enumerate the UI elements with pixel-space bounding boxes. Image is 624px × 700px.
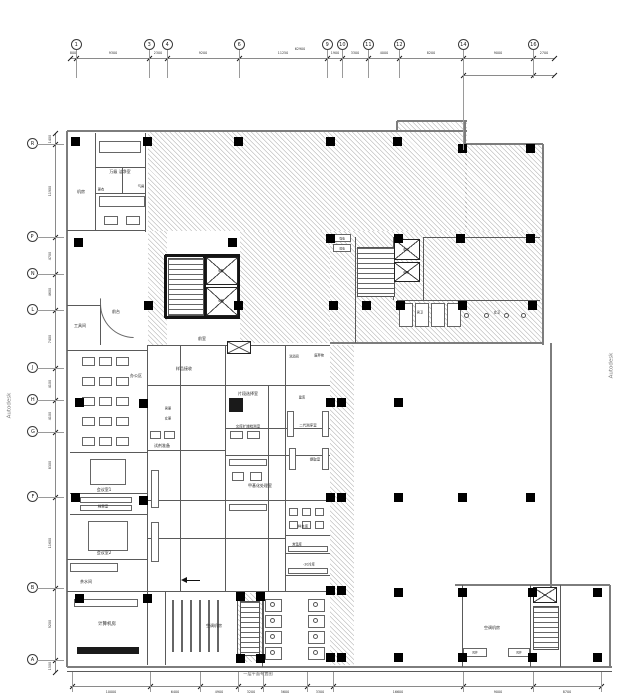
column-marker bbox=[337, 398, 346, 407]
room-label: 女卫 bbox=[494, 310, 500, 315]
wall-segment bbox=[268, 385, 269, 591]
wall-segment bbox=[70, 514, 147, 515]
wall-segment bbox=[180, 345, 181, 591]
room-label: 强电 bbox=[339, 236, 345, 240]
furniture-rect bbox=[287, 411, 294, 437]
room-label: -20冷库 bbox=[303, 562, 315, 567]
dimension-text: 4700 bbox=[48, 251, 52, 259]
column-marker bbox=[528, 301, 537, 310]
wall-segment bbox=[560, 585, 561, 667]
room-label: 计算机房 bbox=[98, 620, 116, 627]
fixture-dot bbox=[504, 313, 509, 318]
grid-line bbox=[533, 50, 534, 78]
dimension-text: 3300 bbox=[316, 690, 324, 694]
column-marker bbox=[326, 586, 335, 595]
outer-wall bbox=[66, 131, 68, 667]
room-label: 风井 bbox=[472, 650, 478, 654]
fixture-dot bbox=[270, 618, 275, 623]
room-label: 男更 bbox=[165, 406, 171, 411]
wall-segment bbox=[100, 305, 101, 345]
column-marker bbox=[326, 137, 335, 146]
wall-segment bbox=[148, 500, 330, 501]
reception-desk-curve bbox=[100, 298, 134, 338]
wall-segment bbox=[355, 237, 356, 343]
room-label: 样本库 bbox=[298, 523, 309, 528]
dimension-text: 11250 bbox=[278, 51, 288, 55]
grid-line bbox=[601, 672, 602, 692]
fixture-dot bbox=[484, 313, 489, 318]
room-label: 试剂准备 bbox=[154, 442, 170, 448]
furniture-rect bbox=[172, 600, 174, 652]
fixture-dot bbox=[313, 618, 318, 623]
equipment-block bbox=[77, 647, 139, 654]
dimension-tick bbox=[53, 670, 59, 676]
fixture-dot bbox=[464, 313, 469, 318]
grid-line bbox=[37, 497, 64, 498]
dimension-text: 9300 bbox=[108, 51, 116, 55]
wall-segment bbox=[67, 230, 145, 231]
furniture-rect bbox=[199, 600, 201, 652]
furniture-rect bbox=[80, 497, 132, 503]
room-label: 电梯 bbox=[403, 247, 409, 252]
furniture-rect bbox=[289, 448, 296, 470]
furniture-rect bbox=[82, 417, 95, 426]
column-marker bbox=[394, 398, 403, 407]
entrance-arrow-icon bbox=[181, 577, 187, 583]
dimension-text: 4000 bbox=[379, 51, 387, 55]
floor-plan-canvas: Autodesk Autodesk 一层平面布置图 机房万级 洁净室气闸更衣工具… bbox=[0, 0, 624, 700]
grid-line bbox=[37, 237, 64, 238]
fixture-dot bbox=[270, 650, 275, 655]
fixture-dot bbox=[313, 634, 318, 639]
furniture-rect bbox=[322, 448, 329, 470]
furniture-rect bbox=[90, 459, 126, 485]
wall-segment bbox=[70, 493, 147, 494]
grid-line bbox=[37, 660, 64, 661]
wall-segment bbox=[67, 350, 147, 351]
dimension-line bbox=[463, 75, 554, 76]
column-marker bbox=[458, 301, 467, 310]
furniture-rect bbox=[99, 397, 112, 406]
furniture-rect bbox=[229, 504, 267, 511]
room-label: 机房 bbox=[77, 188, 85, 194]
room-label: 洗消间 bbox=[289, 354, 299, 359]
fixture-dot bbox=[313, 602, 318, 607]
column-marker bbox=[393, 137, 402, 146]
dimension-text: 4600 bbox=[48, 288, 52, 296]
column-marker bbox=[394, 653, 403, 662]
wall-segment bbox=[70, 452, 147, 453]
furniture-rect bbox=[116, 397, 129, 406]
dimension-text: 9200 bbox=[199, 51, 207, 55]
wall-segment bbox=[423, 237, 424, 300]
furniture-rect bbox=[181, 600, 183, 652]
column-marker bbox=[394, 234, 403, 243]
wall-segment bbox=[148, 450, 225, 451]
grid-line bbox=[76, 50, 77, 78]
entrance-arrow-line bbox=[186, 580, 200, 581]
room-label: 工具间 bbox=[74, 322, 86, 328]
wall-segment bbox=[145, 133, 146, 232]
room-label: 空调机房 bbox=[484, 624, 500, 630]
grid-line bbox=[263, 672, 264, 692]
grid-bubble: 6 bbox=[234, 39, 245, 50]
room-label: 片段选择室 bbox=[238, 390, 258, 396]
grid-line bbox=[37, 588, 64, 589]
grid-line bbox=[37, 432, 64, 433]
furniture-rect bbox=[99, 377, 112, 386]
furniture-rect bbox=[431, 303, 445, 327]
hatch-region bbox=[148, 131, 467, 231]
furniture-rect bbox=[415, 303, 429, 327]
dimension-text: 11900 bbox=[48, 185, 52, 195]
furniture-rect bbox=[104, 216, 118, 225]
furniture-rect bbox=[315, 521, 324, 529]
furniture-rect bbox=[99, 141, 141, 153]
grid-line bbox=[238, 672, 239, 692]
column-marker bbox=[75, 398, 84, 407]
column-marker bbox=[74, 238, 83, 247]
column-marker bbox=[456, 234, 465, 243]
hatch-region bbox=[240, 231, 330, 343]
outer-wall bbox=[609, 585, 611, 667]
column-marker bbox=[458, 653, 467, 662]
column-marker bbox=[337, 653, 346, 662]
column-marker bbox=[528, 653, 537, 662]
column-marker bbox=[234, 137, 243, 146]
furniture-rect bbox=[99, 437, 112, 446]
column-marker bbox=[526, 493, 535, 502]
room-label: 气闸 bbox=[138, 184, 144, 189]
grid-line bbox=[327, 50, 328, 78]
furniture-rect bbox=[288, 568, 328, 574]
hatch-region bbox=[330, 345, 354, 665]
dimension-text: 9000 bbox=[494, 51, 502, 55]
column-marker bbox=[234, 301, 243, 310]
furniture-rect bbox=[116, 357, 129, 366]
column-marker bbox=[326, 653, 335, 662]
room-label: 办公区 bbox=[130, 372, 142, 378]
column-marker bbox=[528, 588, 537, 597]
furniture-rect bbox=[99, 357, 112, 366]
column-marker bbox=[326, 234, 335, 243]
furniture-rect bbox=[82, 357, 95, 366]
wall-segment bbox=[67, 305, 100, 306]
room-label: 会议室1 bbox=[97, 486, 112, 492]
column-marker bbox=[228, 238, 237, 247]
column-marker bbox=[236, 654, 245, 663]
grid-bubble: 4 bbox=[162, 39, 173, 50]
dimension-text: 3300 bbox=[351, 51, 359, 55]
column-marker bbox=[337, 586, 346, 595]
grid-bubble: 9 bbox=[322, 39, 333, 50]
stair-treads bbox=[533, 606, 559, 650]
wall-segment bbox=[423, 237, 540, 238]
furniture-rect bbox=[289, 521, 298, 529]
column-marker bbox=[236, 592, 245, 601]
room-label: 风井 bbox=[516, 650, 522, 654]
grid-line bbox=[37, 274, 64, 275]
dimension-tick bbox=[552, 73, 558, 79]
column-marker bbox=[256, 592, 265, 601]
outer-wall bbox=[396, 121, 398, 131]
furniture-rect bbox=[126, 216, 140, 225]
dimension-text: 6400 bbox=[171, 690, 179, 694]
wall-segment bbox=[225, 345, 226, 591]
dimension-text: 8700 bbox=[563, 690, 571, 694]
dimension-text: 2300 bbox=[154, 51, 162, 55]
column-marker bbox=[326, 493, 335, 502]
furniture-rect bbox=[230, 431, 243, 439]
hatch-region bbox=[465, 144, 543, 231]
grid-bubble: 11 bbox=[363, 39, 374, 50]
dimension-text: 1400 bbox=[48, 134, 52, 142]
grid-bubble: 14 bbox=[458, 39, 469, 50]
dimension-text: 5600 bbox=[281, 690, 289, 694]
room-label: 电梯 bbox=[218, 268, 224, 273]
wall-segment bbox=[95, 133, 96, 230]
grid-line bbox=[399, 50, 400, 78]
fixture-dot bbox=[313, 650, 318, 655]
wall-segment bbox=[285, 535, 330, 536]
grid-bubble: 12 bbox=[394, 39, 405, 50]
wall-segment bbox=[67, 559, 147, 560]
wall-segment bbox=[148, 538, 285, 539]
grid-line bbox=[37, 144, 64, 145]
room-label: 茶水间 bbox=[80, 578, 92, 584]
outer-wall bbox=[542, 144, 544, 345]
dimension-text: 3200 bbox=[246, 690, 254, 694]
furniture-rect bbox=[288, 546, 328, 552]
wall-segment bbox=[285, 575, 330, 576]
elevator-box bbox=[227, 341, 251, 354]
dimension-text: 11600 bbox=[48, 537, 52, 547]
dimension-text: 8300 bbox=[48, 460, 52, 468]
grid-line bbox=[342, 50, 343, 78]
wall-segment bbox=[148, 385, 330, 386]
dimension-text: 4100 bbox=[48, 380, 52, 388]
room-label: 二代测序室 bbox=[299, 422, 317, 427]
core-wall bbox=[164, 255, 167, 318]
wall-segment bbox=[285, 345, 286, 591]
furniture-rect bbox=[190, 600, 192, 652]
dimension-text: 1500 bbox=[48, 662, 52, 670]
room-label: 档案室 bbox=[98, 503, 109, 508]
grid-line bbox=[150, 672, 151, 692]
column-marker bbox=[143, 594, 152, 603]
furniture-rect bbox=[151, 470, 159, 508]
fixture-dot bbox=[270, 602, 275, 607]
column-marker bbox=[143, 137, 152, 146]
outer-wall bbox=[397, 120, 467, 122]
outer-wall bbox=[67, 130, 467, 132]
column-marker bbox=[362, 301, 371, 310]
wall-segment bbox=[263, 592, 264, 662]
furniture-rect bbox=[289, 508, 298, 516]
grid-bubble: 3 bbox=[144, 39, 155, 50]
room-label: 空调机房 bbox=[206, 622, 222, 628]
dimension-text: 1900 bbox=[330, 51, 338, 55]
stair-treads bbox=[240, 601, 260, 656]
column-marker bbox=[337, 493, 346, 502]
furniture-rect bbox=[99, 196, 145, 207]
grid-line bbox=[167, 50, 168, 78]
column-marker bbox=[526, 234, 535, 243]
furniture-rect bbox=[151, 522, 159, 562]
furniture-rect bbox=[82, 377, 95, 386]
dimension-text: 7400 bbox=[48, 335, 52, 343]
dimension-line bbox=[70, 58, 554, 59]
fixture-dot bbox=[270, 634, 275, 639]
wall-segment bbox=[397, 300, 540, 301]
room-label: 更衣 bbox=[98, 187, 104, 192]
furniture-rect bbox=[322, 411, 329, 437]
dimension-text: 16600 bbox=[393, 690, 403, 694]
grid-line bbox=[533, 672, 534, 692]
stair-treads bbox=[168, 258, 204, 316]
fixture-dot bbox=[521, 313, 526, 318]
furniture-rect bbox=[99, 417, 112, 426]
dimension-text: 2700 bbox=[539, 51, 547, 55]
column-marker bbox=[458, 588, 467, 597]
outer-wall bbox=[464, 121, 466, 146]
furniture-rect bbox=[116, 377, 129, 386]
grid-line bbox=[37, 310, 64, 311]
room-label: 常温库 bbox=[292, 542, 302, 547]
watermark-autodesk-right: Autodesk bbox=[608, 353, 614, 379]
dimension-text: 4900 bbox=[215, 690, 223, 694]
room-label: 男卫 bbox=[417, 310, 423, 315]
column-marker bbox=[593, 653, 602, 662]
room-label: 前台 bbox=[112, 308, 120, 314]
grid-line bbox=[72, 672, 73, 692]
column-marker bbox=[394, 588, 403, 597]
furniture-rect bbox=[150, 431, 161, 439]
furniture-rect bbox=[247, 431, 260, 439]
dimension-text: 9200 bbox=[48, 620, 52, 628]
wall-segment bbox=[67, 671, 612, 672]
grid-line bbox=[239, 50, 240, 78]
grid-line bbox=[37, 400, 64, 401]
dimension-text: 62900 bbox=[295, 47, 305, 51]
grid-line bbox=[463, 50, 464, 150]
grid-line bbox=[463, 672, 464, 692]
dimension-tick bbox=[552, 56, 558, 62]
furniture-rect bbox=[164, 431, 175, 439]
column-marker bbox=[396, 301, 405, 310]
dimension-line bbox=[55, 133, 56, 672]
stair-treads bbox=[357, 247, 395, 297]
outer-wall bbox=[330, 342, 543, 344]
room-label: 建库 bbox=[299, 395, 305, 400]
furniture-rect bbox=[232, 472, 244, 481]
grid-line bbox=[200, 672, 201, 692]
furniture-rect bbox=[116, 417, 129, 426]
grid-bubble: 1 bbox=[71, 39, 82, 50]
wall-segment bbox=[285, 553, 330, 554]
room-label: 弱电 bbox=[339, 246, 345, 250]
column-marker bbox=[144, 301, 153, 310]
column-marker bbox=[593, 588, 602, 597]
column-marker bbox=[71, 137, 80, 146]
room-label: 提取室 bbox=[310, 456, 321, 461]
room-label: 会议室2 bbox=[97, 549, 112, 555]
grid-line bbox=[37, 368, 64, 369]
grid-bubble: 16 bbox=[528, 39, 539, 50]
grid-line bbox=[333, 672, 334, 692]
column-marker bbox=[71, 493, 80, 502]
room-label: 文库扩增检测室 bbox=[236, 423, 261, 428]
room-label: 甲基化处理室 bbox=[248, 482, 272, 488]
column-marker bbox=[526, 144, 535, 153]
furniture-rect bbox=[315, 508, 324, 516]
room-label: 电梯 bbox=[403, 270, 409, 275]
furniture-rect bbox=[229, 459, 267, 466]
furniture-rect bbox=[88, 521, 128, 551]
room-label: 废弃物 bbox=[314, 353, 324, 358]
grid-line bbox=[368, 50, 369, 78]
dimension-text: 4100 bbox=[48, 412, 52, 420]
furniture-rect bbox=[302, 508, 311, 516]
wall-segment bbox=[237, 592, 238, 662]
outer-wall bbox=[550, 343, 552, 592]
grid-bubble: 10 bbox=[337, 39, 348, 50]
equipment-block bbox=[229, 398, 243, 412]
outer-wall bbox=[455, 584, 610, 586]
column-marker bbox=[139, 399, 148, 408]
wall-segment bbox=[67, 591, 330, 592]
wall-segment bbox=[95, 193, 145, 194]
room-label: 女更 bbox=[165, 416, 171, 421]
dimension-text: 10000 bbox=[106, 690, 116, 694]
wall-segment bbox=[165, 591, 166, 665]
column-marker bbox=[75, 594, 84, 603]
column-marker bbox=[139, 496, 148, 505]
column-marker bbox=[394, 493, 403, 502]
furniture-rect bbox=[116, 437, 129, 446]
column-marker bbox=[329, 301, 338, 310]
room-label: 电梯 bbox=[218, 298, 224, 303]
grid-line bbox=[307, 672, 308, 692]
furniture-rect bbox=[70, 563, 118, 572]
dimension-text: 9000 bbox=[494, 690, 502, 694]
column-marker bbox=[458, 493, 467, 502]
room-label: 样品接收 bbox=[176, 365, 192, 371]
column-marker bbox=[326, 398, 335, 407]
room-label: 前室 bbox=[198, 335, 206, 341]
furniture-rect bbox=[250, 472, 262, 481]
grid-line bbox=[149, 50, 150, 78]
wall-segment bbox=[147, 345, 148, 665]
room-label: 万级 洁净室 bbox=[109, 168, 130, 174]
watermark-autodesk-left: Autodesk bbox=[6, 393, 12, 419]
dimension-text: 8200 bbox=[427, 51, 435, 55]
column-marker bbox=[256, 654, 265, 663]
furniture-rect bbox=[82, 437, 95, 446]
